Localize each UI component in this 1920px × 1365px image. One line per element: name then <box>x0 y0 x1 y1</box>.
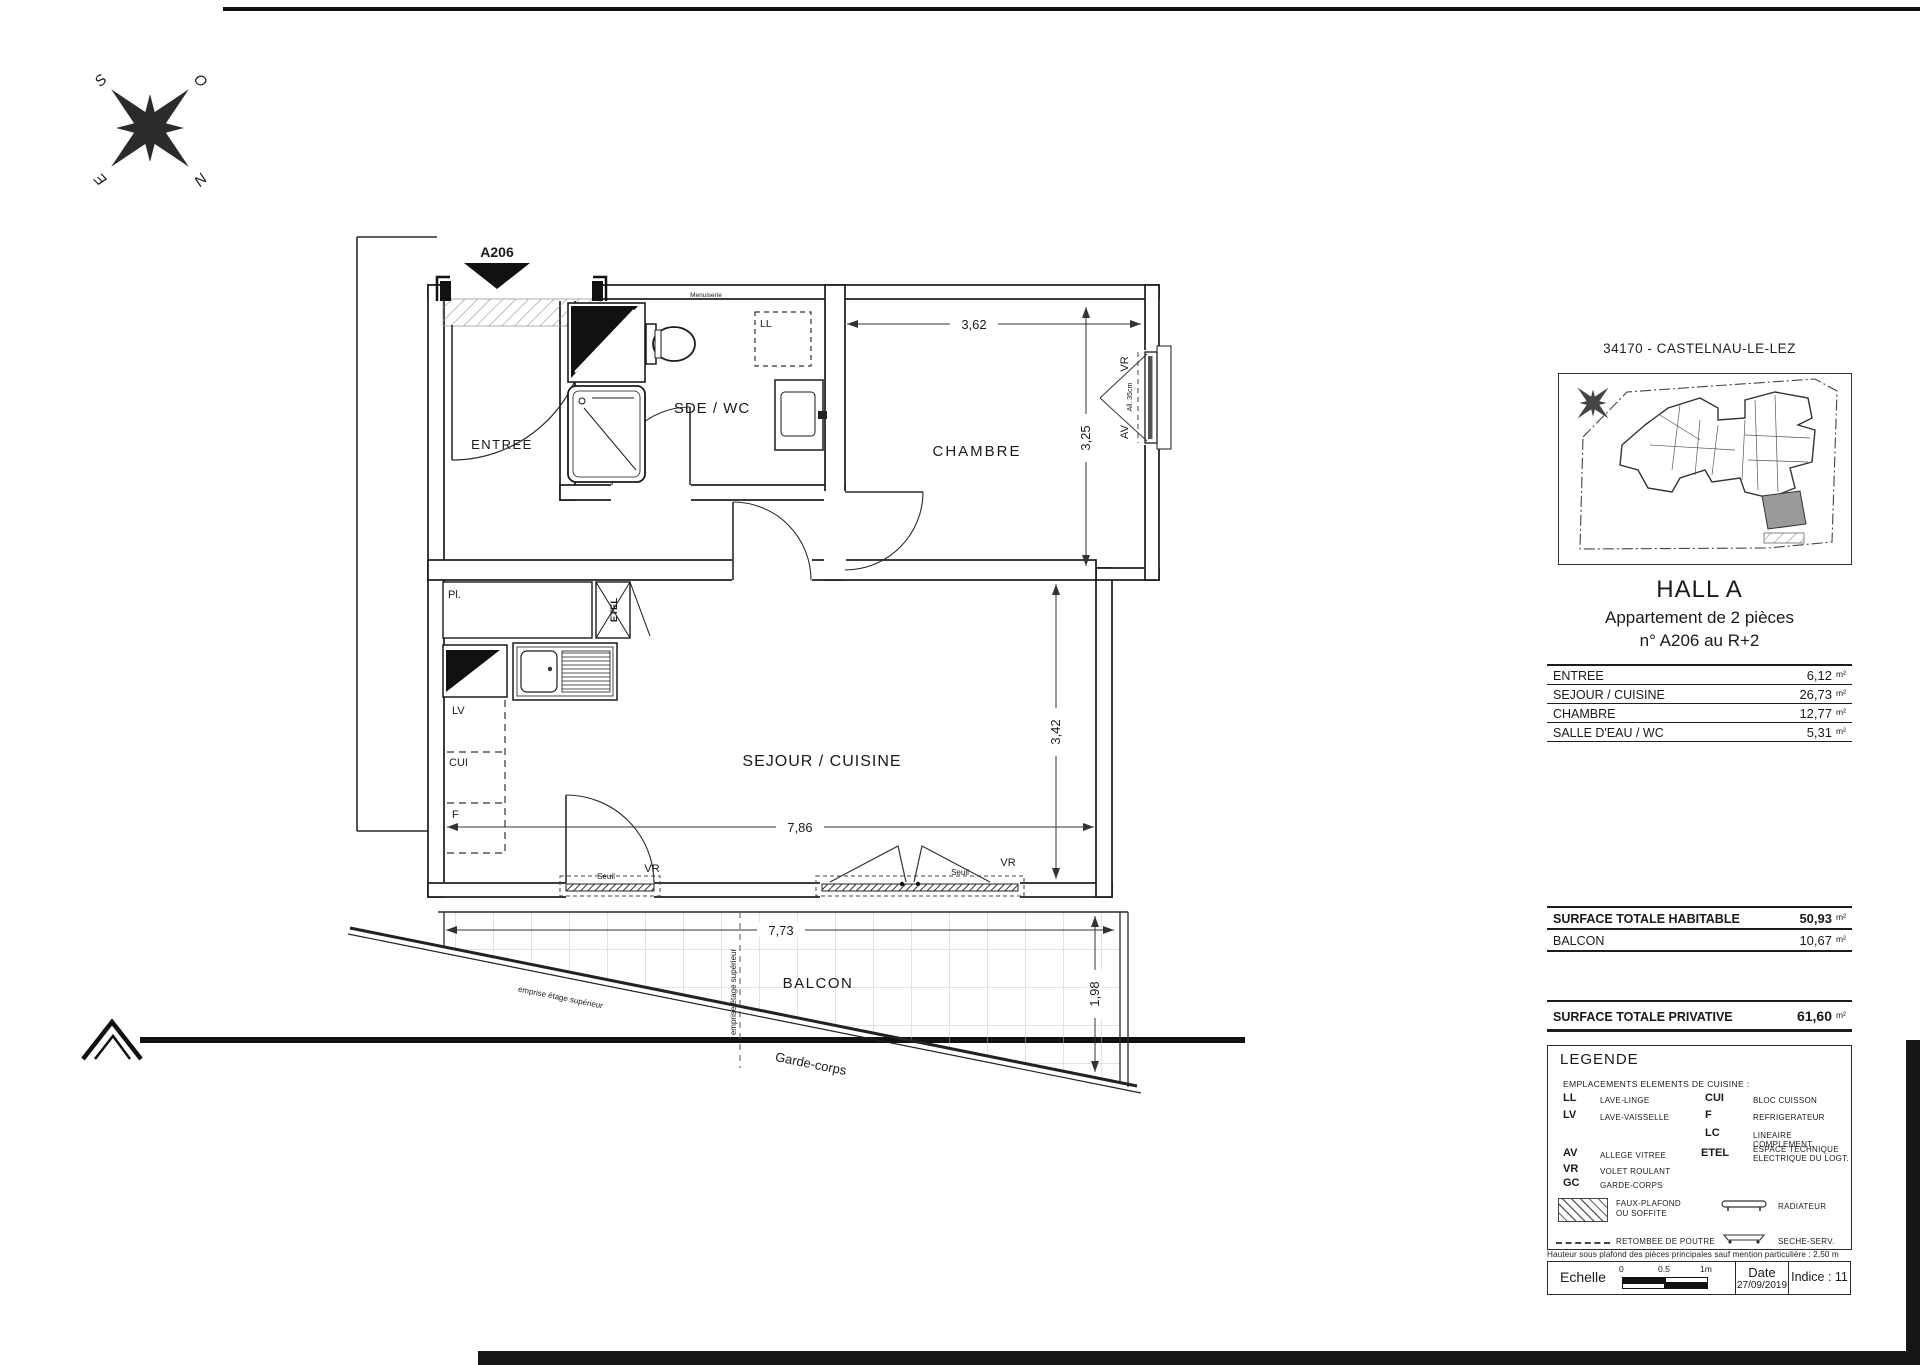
habitable-area: 50,93 <box>1799 911 1832 926</box>
faux-plafond-label2: OU SOFFITE <box>1616 1209 1667 1218</box>
scale-bar-segment <box>1622 1283 1665 1289</box>
row-area: 26,73 <box>1799 687 1832 702</box>
balcon-label: BALCON <box>783 975 854 992</box>
menuiserie-label: Menuiserie <box>690 292 722 299</box>
retombee-swatch-icon <box>1556 1242 1610 1244</box>
balcon-area: 10,67 <box>1799 933 1832 948</box>
row-unit: m² <box>1836 669 1850 679</box>
row-unit: m² <box>1836 1010 1850 1020</box>
table-row: SALLE D'EAU / WC 5,31m² <box>1547 723 1852 742</box>
chambre-door-swing <box>845 492 923 570</box>
compass-s: S <box>91 71 110 90</box>
dim-chambre-h: 3,25 <box>1078 425 1093 450</box>
vanity <box>775 380 823 450</box>
table-row: CHAMBRE 12,77m² <box>1547 704 1852 723</box>
retombee-label: RETOMBEE DE POUTRE <box>1616 1237 1715 1246</box>
chambre-window: VR All. 35cm AV <box>1100 346 1171 449</box>
row-unit: m² <box>1836 934 1850 944</box>
ceiling-height-note: Hauteur sous plafond des pièces principa… <box>1547 1250 1852 1259</box>
legend-subtitle: EMPLACEMENTS ELEMENTS DE CUISINE : <box>1563 1079 1749 1089</box>
date-value: 27/09/2019 <box>1736 1280 1788 1291</box>
title-block: Echelle 0 0.5 1m Date 27/09/2019 Indice … <box>1547 1261 1851 1295</box>
scale-tick-0: 0 <box>1619 1264 1624 1274</box>
legend-abbr: AV <box>1563 1147 1577 1159</box>
table-row: BALCON 10,67m² <box>1547 930 1852 952</box>
legend-def: ESPACE TECHNIQUE <box>1753 1145 1839 1154</box>
seche-serviette-icon <box>1720 1232 1770 1246</box>
faux-plafond-swatch-icon <box>1558 1198 1608 1222</box>
seche-serv-label: SECHE-SERV. <box>1778 1237 1835 1246</box>
faux-plafond-label: FAUX-PLAFOND <box>1616 1199 1681 1208</box>
chambre-label: CHAMBRE <box>932 443 1021 460</box>
dim-sejour-h: 3,42 <box>1048 719 1063 744</box>
legend-def: BLOC CUISSON <box>1753 1096 1817 1105</box>
hall-title: HALL A <box>1547 576 1852 604</box>
context-walls <box>357 237 437 831</box>
table-row: ENTREE 6,12m² <box>1547 666 1852 685</box>
scale-tick-1m: 1m <box>1700 1264 1712 1274</box>
balcon-label: BALCON <box>1553 934 1604 948</box>
scan-shadow-bottom <box>478 1351 1920 1365</box>
privative-label: SURFACE TOTALE PRIVATIVE <box>1553 1010 1733 1024</box>
row-unit: m² <box>1836 912 1850 922</box>
legend-abbr: CUI <box>1705 1092 1724 1104</box>
table-row: SURFACE TOTALE HABITABLE 50,93m² <box>1547 908 1852 930</box>
row-area: 6,12 <box>1807 668 1832 683</box>
habitable-label: SURFACE TOTALE HABITABLE <box>1553 912 1740 926</box>
row-unit: m² <box>1836 707 1850 717</box>
dim-chambre-w: 3,62 <box>961 317 986 332</box>
radiateur-label: RADIATEUR <box>1778 1202 1826 1211</box>
seuil-right-label: Seuil <box>951 868 969 877</box>
row-unit: m² <box>1836 726 1850 736</box>
legend-abbr: LL <box>1563 1092 1576 1104</box>
dim-sejour-w: 7,86 <box>787 820 812 835</box>
sink-bowl <box>521 651 557 692</box>
areas-table: ENTREE 6,12m² SEJOUR / CUISINE 26,73m² C… <box>1547 664 1852 742</box>
date-label: Date <box>1736 1265 1788 1280</box>
drainer <box>562 651 610 692</box>
scale-tick-05: 0.5 <box>1658 1264 1670 1274</box>
placard <box>443 582 592 638</box>
apartment-type: Appartement de 2 pièces <box>1547 608 1852 628</box>
row-label: CHAMBRE <box>1553 707 1616 721</box>
balcony-area: BALCON Garde-corps emprise étage supérie… <box>348 912 1141 1093</box>
placard-label: Pl. <box>448 589 461 601</box>
legend-box: LEGENDE EMPLACEMENTS ELEMENTS DE CUISINE… <box>1547 1045 1852 1250</box>
radiator-icon <box>1720 1199 1770 1213</box>
worktop-dashed-zone <box>447 700 505 855</box>
legend-abbr: ETEL <box>1701 1147 1729 1159</box>
scan-shadow-right <box>1906 1040 1920 1365</box>
privative-table: SURFACE TOTALE PRIVATIVE 61,60m² <box>1547 1000 1852 1032</box>
dim-balcon-w: 7,73 <box>768 923 793 938</box>
legend-def: REFRIGERATEUR <box>1753 1113 1825 1122</box>
entree-label: ENTREE <box>471 437 533 452</box>
apartment-number: n° A206 au R+2 <box>1547 631 1852 651</box>
legend-abbr: LC <box>1705 1127 1720 1139</box>
row-label: ENTREE <box>1553 669 1604 683</box>
legend-def: ALLEGE VITREE <box>1600 1151 1666 1160</box>
lv-label: LV <box>452 705 465 717</box>
garde-corps-label: Garde-corps <box>774 1049 848 1078</box>
compass-e: E <box>91 169 111 189</box>
legend-abbr: F <box>1705 1109 1712 1121</box>
emprise-label-vertical: emprise étage supérieur <box>729 949 738 1036</box>
compass-n: N <box>190 169 210 189</box>
etel-label: ETEL <box>609 598 620 622</box>
echelle-label: Echelle <box>1560 1269 1606 1285</box>
balcony-doors: Seuil VR Seuil VR <box>560 795 1024 896</box>
row-label: SALLE D'EAU / WC <box>1553 726 1664 740</box>
legend-abbr: VR <box>1563 1163 1578 1175</box>
legend-def: VOLET ROULANT <box>1600 1167 1670 1176</box>
sejour-label: SEJOUR / CUISINE <box>742 753 901 770</box>
row-area: 12,77 <box>1799 706 1832 721</box>
cui-label: CUI <box>449 757 468 769</box>
compass-rose-icon: S O N E <box>72 50 228 206</box>
table-row: SEJOUR / CUISINE 26,73m² <box>1547 685 1852 704</box>
entry-unit-label: A206 <box>480 244 514 260</box>
table-row: SURFACE TOTALE PRIVATIVE 61,60m² <box>1547 1002 1852 1029</box>
vr-left-label: VR <box>644 863 659 875</box>
row-area: 5,31 <box>1807 725 1832 740</box>
row-unit: m² <box>1836 688 1850 698</box>
seuil-left-label: Seuil <box>597 872 615 881</box>
indice-value: Indice : 11 <box>1789 1270 1850 1284</box>
sde-label: SDE / WC <box>674 400 750 417</box>
city-title: 34170 - CASTELNAU-LE-LEZ <box>1547 341 1852 356</box>
legend-abbr: GC <box>1563 1177 1580 1189</box>
legend-def: ELECTRIQUE DU LOGT. <box>1753 1154 1849 1163</box>
legend-def: LAVE-LINGE <box>1600 1096 1650 1105</box>
floorplan-page: S O N E BALCON Garde-corps emprise étage… <box>0 0 1920 1365</box>
sliding-door-panel-left <box>830 846 906 882</box>
legend-def: LAVE-VAISSELLE <box>1600 1113 1669 1122</box>
door-jamb-right <box>592 281 603 301</box>
window-av-label: AV <box>1119 424 1131 439</box>
privative-area: 61,60 <box>1797 1008 1832 1024</box>
window-allege-label: All. 35cm <box>1127 382 1134 411</box>
emprise-label-slant: emprise étage supérieur <box>517 985 604 1011</box>
legend-def: GARDE-CORPS <box>1600 1181 1663 1190</box>
f-label: F <box>452 809 459 821</box>
row-label: SEJOUR / CUISINE <box>1553 688 1665 702</box>
door-jamb-left <box>440 281 451 301</box>
fold-mark-icon <box>83 1022 141 1059</box>
legend-title: LEGENDE <box>1560 1051 1639 1068</box>
window-vr-label: VR <box>1119 356 1131 371</box>
balcony-door-swing <box>566 795 654 883</box>
bathroom-fixtures: LL SDE / WC Menuiserie <box>568 292 827 482</box>
site-plan-frame <box>1558 373 1852 565</box>
dim-balcon-d: 1,98 <box>1087 981 1102 1006</box>
ll-label: LL <box>760 318 772 330</box>
vr-right-label: VR <box>1000 857 1015 869</box>
scale-bar-segment <box>1665 1283 1708 1289</box>
kitchen-fixtures: Pl. ETEL LV CUI F <box>443 582 650 855</box>
totals-table: SURFACE TOTALE HABITABLE 50,93m² BALCON … <box>1547 906 1852 952</box>
compass-o: O <box>190 71 211 92</box>
legend-abbr: LV <box>1563 1109 1576 1121</box>
